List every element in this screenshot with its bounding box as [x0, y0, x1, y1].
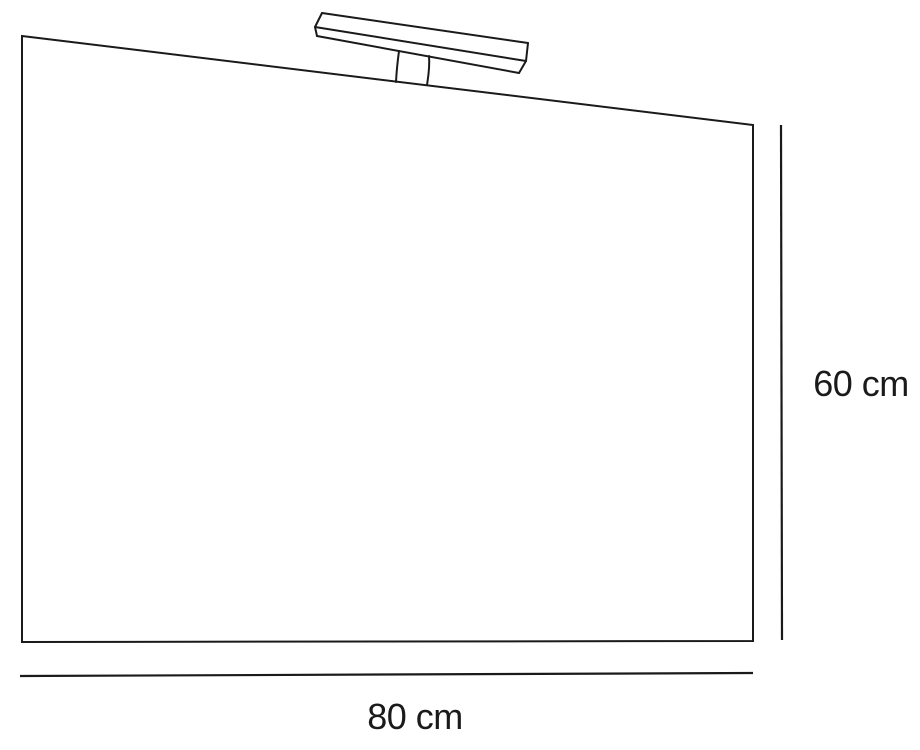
height-dimension-label: 60 cm — [813, 363, 909, 404]
mirror-dimension-diagram: 60 cm 80 cm — [0, 0, 920, 750]
lamp-fixture — [315, 13, 528, 85]
dimension-drawing-canvas: 60 cm 80 cm — [0, 0, 920, 750]
lamp-stem-left-edge — [396, 51, 399, 82]
width-dimension-label: 80 cm — [367, 696, 463, 737]
lamp-bar-right-cap — [519, 43, 528, 73]
lamp-bar-top-edge — [322, 13, 528, 43]
width-dimension-line — [20, 673, 753, 676]
lamp-bar-left-cap — [315, 13, 322, 36]
lamp-stem-right-edge — [427, 56, 429, 85]
height-dimension-line — [781, 125, 782, 640]
mirror-outline — [22, 36, 753, 642]
